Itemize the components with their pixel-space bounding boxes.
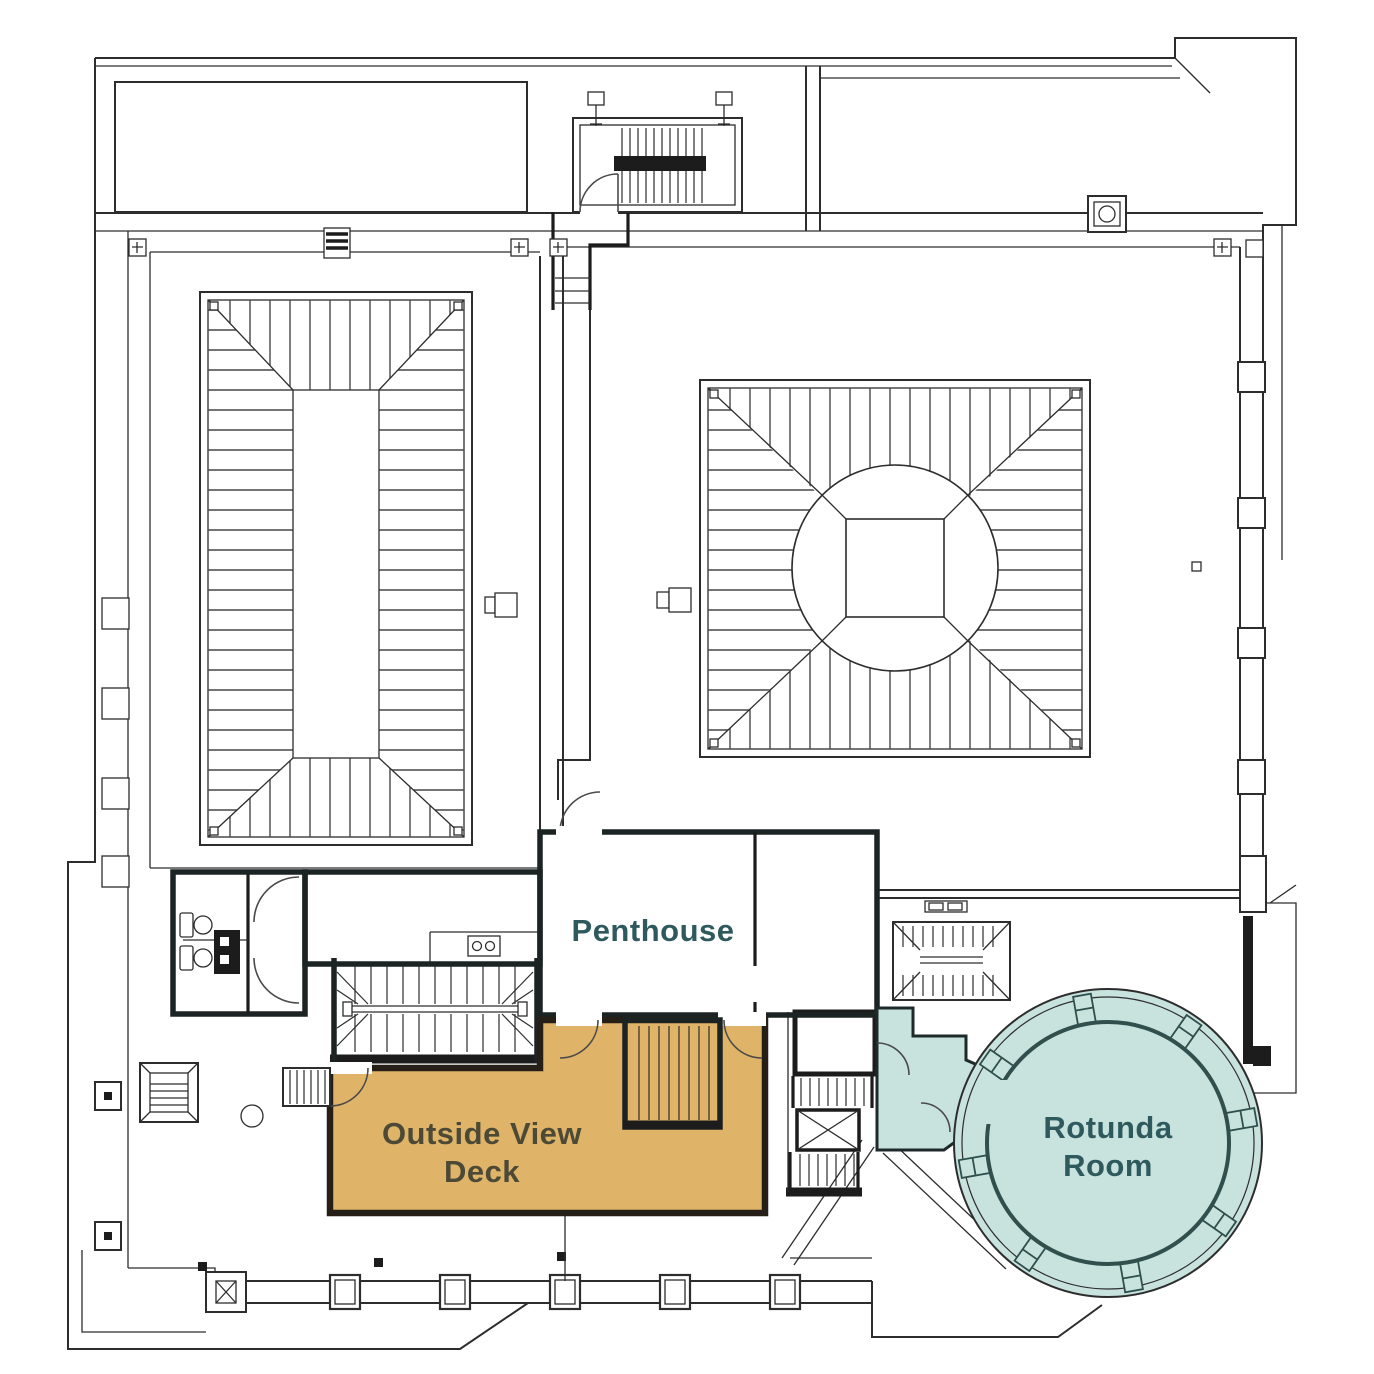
toilet-fixture (180, 913, 212, 970)
colonnade-end-cap (206, 1272, 246, 1312)
post-dot-marker (129, 239, 146, 256)
roof-slope-right (379, 300, 464, 837)
rotunda-entry (978, 1080, 1014, 1124)
roof-slope-left (208, 300, 293, 837)
roof-lantern (846, 519, 944, 617)
rotunda-room: Rotunda Room (954, 989, 1262, 1297)
deck-label-line1: Outside View (382, 1116, 582, 1151)
rotunda-label-line1: Rotunda (1043, 1110, 1172, 1145)
penthouse: Penthouse (540, 826, 877, 1015)
wall-pilaster (1240, 856, 1266, 912)
door-swing (254, 877, 299, 1003)
roof-hatch-grate (140, 1063, 198, 1122)
roof-ridge (293, 390, 379, 758)
penthouse-label: Penthouse (572, 913, 735, 948)
main-stair (330, 958, 540, 1065)
left-hip-roof (200, 292, 472, 845)
shaft (795, 1012, 875, 1074)
colonnade-column (330, 1275, 360, 1309)
post-dot-marker (550, 239, 567, 256)
floor-plan-drawing: Penthouse Outside View Deck (0, 0, 1374, 1374)
chimney (1088, 196, 1126, 232)
stair-landing (614, 156, 706, 171)
floor-plan-page: Penthouse Outside View Deck (0, 0, 1374, 1374)
colonnade-column (770, 1275, 800, 1309)
left-wall-details (95, 598, 129, 1250)
colonnade-column (660, 1275, 690, 1309)
roof-post (716, 92, 732, 126)
corridor (305, 872, 540, 964)
rotunda-label-line2: Room (1063, 1148, 1153, 1183)
roof-drain (241, 1105, 263, 1127)
roof-post (588, 92, 604, 126)
roof-access-stair-room (573, 92, 742, 218)
post-dot-marker (1214, 239, 1231, 256)
right-hip-roof (700, 380, 1090, 757)
stair-bulkhead-roof (893, 922, 1010, 1000)
fixture-dark (214, 930, 240, 974)
post-dot-marker (511, 239, 528, 256)
exterior-stair (283, 1068, 330, 1106)
wall-connector (324, 228, 350, 258)
colonnade-column (440, 1275, 470, 1309)
deck-label-line2: Deck (444, 1154, 520, 1189)
top-left-wing-room (115, 82, 527, 212)
sink-fixture (468, 936, 500, 956)
right-wall-pilasters (1238, 240, 1265, 794)
